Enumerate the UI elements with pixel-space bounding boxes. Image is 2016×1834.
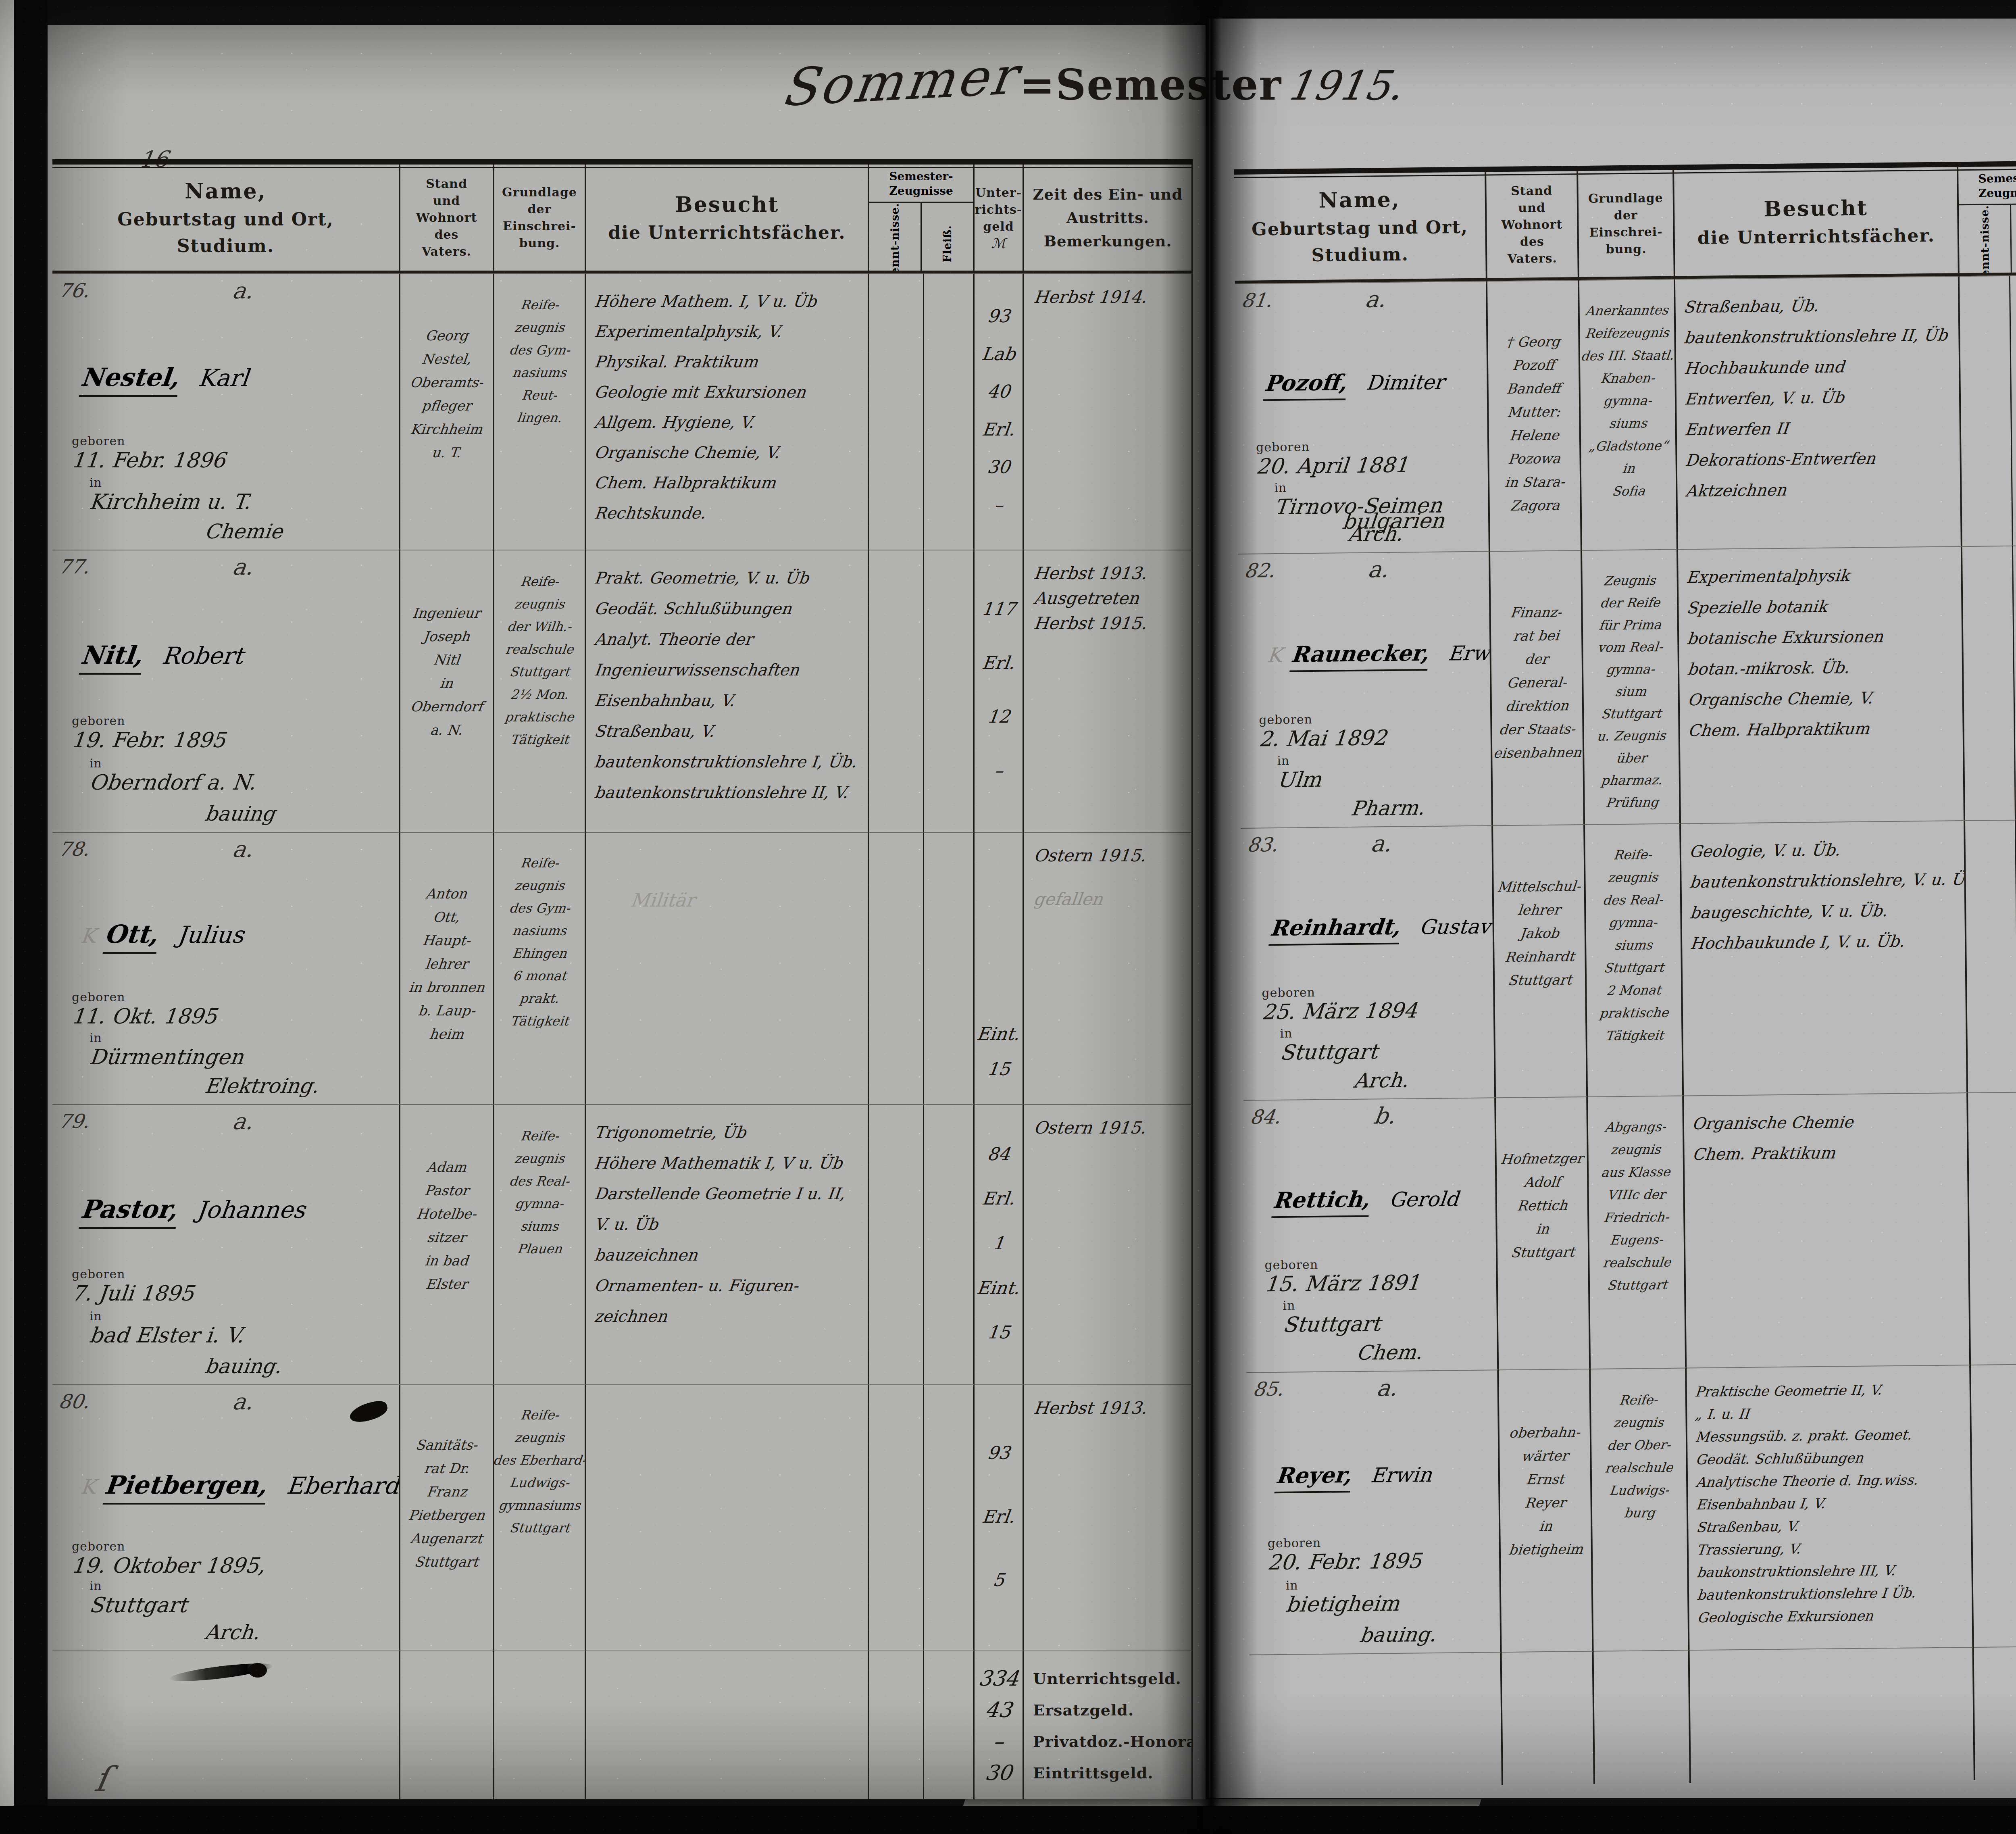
father-info-line: direktion xyxy=(1504,694,1570,718)
entry-number: 77. xyxy=(57,555,91,578)
header-line: Grundlage xyxy=(502,184,577,201)
enrollment-basis-line: zeugnis xyxy=(1610,1138,1662,1161)
birth-line: geboren15. März 1891 xyxy=(1264,1257,1420,1296)
header-zeugnisse-sub: Kennt-nisse.Fleiß. xyxy=(869,203,973,273)
father-info-line: eisenbahnen xyxy=(1492,740,1583,765)
father-info-line: bietigheim xyxy=(1508,1537,1584,1561)
enrollment-basis-line: des Gym- xyxy=(508,897,571,919)
father-info-line: Pastor xyxy=(423,1179,470,1202)
fee-value: Eint. xyxy=(976,1023,1021,1044)
birth-label: geboren xyxy=(72,714,217,728)
enrollment-basis-line: 2½ Mon. xyxy=(509,683,570,706)
father-info-line: Finanz- xyxy=(1509,600,1563,624)
student-surname: Reyer, xyxy=(1274,1462,1353,1493)
place-line: inbietigheim xyxy=(1286,1577,1400,1616)
student-name: KRaunecker,Erwin xyxy=(1267,639,1493,672)
fleiss-cell xyxy=(924,832,975,1104)
kenntnisse-cell xyxy=(869,550,924,832)
header-name-column: Name,Geburtstag und Ort,Studium. xyxy=(52,165,400,273)
student-firstname: Dimiter xyxy=(1365,370,1445,394)
enrollment-basis-line: Reife- xyxy=(1612,843,1653,866)
student-surname: Nitl, xyxy=(79,640,145,675)
subject-line: bautenkonstruktionslehre I, Üb. xyxy=(593,746,864,777)
father-info-cell: IngenieurJosephNitlinOberndorfa. N. xyxy=(400,550,494,832)
student-firstname: Eberhard xyxy=(285,1472,400,1499)
student-firstname: Erwin xyxy=(1447,641,1493,665)
subject-line: Straßenbau, V. xyxy=(593,716,864,746)
enrollment-basis-cell: Reife-zeugnisdes Eberhard-Ludwigs-gymnas… xyxy=(494,1384,586,1651)
tuition-fee-cell: 93Lab40Erl.30– xyxy=(975,273,1024,550)
place-line: inKirchheim u. T. xyxy=(90,475,251,514)
fleiss-cell xyxy=(924,273,975,550)
subject-line: Organische Chemie, V. xyxy=(593,438,864,468)
header-line: Einschrei- xyxy=(1589,223,1663,241)
enrollment-basis-line: zeugnis xyxy=(513,1147,566,1170)
birth-date: 19. Oktober 1895, xyxy=(71,1553,267,1578)
father-info-line: Bandeff xyxy=(1506,377,1562,400)
fee-value: 15 xyxy=(986,1322,1011,1342)
subject-line: Hochbaukunde I, V. u. Üb. xyxy=(1689,925,1962,959)
place-label: in xyxy=(90,1579,179,1593)
birth-line: geboren11. Okt. 1895 xyxy=(72,990,217,1028)
enrollment-basis-line: des Gym- xyxy=(508,339,571,361)
father-info-cell: AdamPastorHotelbe-sitzerin badElster xyxy=(400,1104,494,1384)
table-row-name-cell: 79.a.Pastor,Johannesgeboren7. Juli 1895i… xyxy=(52,1104,400,1384)
birth-place: Stuttgart xyxy=(1282,1312,1382,1337)
enrollment-basis-line: Reife- xyxy=(519,570,560,593)
category-letter: a. xyxy=(1364,286,1388,313)
father-info-line: oberbahn- xyxy=(1508,1420,1581,1444)
subject-line: Geologische Exkursionen xyxy=(1696,1603,1968,1629)
header-zeugnisse-title: Semester-Zeugnisse xyxy=(869,165,973,203)
header-line: der xyxy=(1614,206,1638,224)
totals-empty-cell xyxy=(494,1651,586,1800)
study-field: Elektroing. xyxy=(203,1074,320,1098)
student-firstname: Gustav xyxy=(1418,915,1491,939)
totals-empty-cell xyxy=(400,1651,494,1800)
table-row-name-cell: 76.a.Nestel,Karlgeboren11. Febr. 1896inK… xyxy=(52,273,400,550)
fleiss-cell xyxy=(924,550,975,832)
place-line: inStuttgart xyxy=(90,1579,187,1617)
study-field: bauing xyxy=(203,802,276,825)
place-line: inbad Elster i. V. xyxy=(90,1309,244,1347)
enrollment-basis-line: siums xyxy=(1614,934,1654,957)
totals-empty-cell xyxy=(1594,1650,1691,1784)
totals-empty-cell xyxy=(869,1651,924,1800)
category-letter: a. xyxy=(231,554,255,580)
student-name: Nestel,Karl xyxy=(81,363,248,397)
subject-line: Spezielle botanik xyxy=(1685,590,1958,623)
subject-line: Analytische Theorie d. Ing.wiss. xyxy=(1695,1468,1967,1493)
father-info-line: Haupt- xyxy=(421,929,472,952)
kenntnisse-cell xyxy=(869,273,924,550)
header-line: des xyxy=(435,226,459,243)
totals-empty-cell xyxy=(586,1651,869,1800)
student-surname: Rettich, xyxy=(1271,1186,1371,1218)
header-fleiss: Fleiß. xyxy=(922,203,973,273)
header-line: Unter- xyxy=(975,184,1022,201)
father-info-line: b. Laup- xyxy=(417,999,476,1022)
book-scan: Sommer =Semester 1915. 16 Name,Geburtsta… xyxy=(0,0,2016,1834)
father-info-line: der xyxy=(1524,647,1549,671)
birth-label: geboren xyxy=(1264,1257,1412,1272)
fee-value: 84 xyxy=(986,1144,1011,1164)
student-name: Rettich,Gerold xyxy=(1272,1186,1458,1218)
birth-label: geboren xyxy=(72,434,217,448)
title-handwritten-sommer: Sommer xyxy=(778,46,1021,118)
birth-place: Kirchheim u. T. xyxy=(88,490,252,514)
subjects-cell: Prakt. Geometrie, V. u. ÜbGeodät. Schluß… xyxy=(586,550,869,832)
birth-line: geboren2. Mai 1892 xyxy=(1259,711,1387,751)
enrollment-basis-line: gymna- xyxy=(1608,911,1658,934)
header-line: die Unterrichtsfächer. xyxy=(1697,222,1935,251)
header-line: Einschrei- xyxy=(503,218,576,235)
header-line: richts- xyxy=(975,201,1022,218)
enrollment-basis-line: Stuttgart xyxy=(1600,702,1662,725)
father-info-cell: Mittelschul-lehrerJakobReinhardtStuttgar… xyxy=(1493,824,1588,1097)
fee-value: 40 xyxy=(986,381,1011,402)
enrollment-basis-line: realschule xyxy=(1604,1456,1674,1480)
place-label: in xyxy=(1277,753,1313,768)
student-surname: Reinhardt, xyxy=(1268,914,1402,946)
register-table-right: Name,Geburtstag und Ort,Studium.Standund… xyxy=(1234,158,2016,1788)
subject-line: bautenkonstruktionslehre, V. u. Üb. xyxy=(1688,864,1961,897)
header-line: Besucht xyxy=(1764,193,1868,224)
enrollment-basis-cell: AnerkanntesReifezeugnisdes III. Staatl.K… xyxy=(1579,279,1678,550)
father-info-line: Rettich xyxy=(1516,1193,1568,1217)
fee-value: Erl. xyxy=(981,419,1016,440)
enrollment-basis-line: Abgangs- xyxy=(1604,1115,1667,1139)
kenntnisse-cell xyxy=(1962,546,2016,820)
header-line: Stand xyxy=(1511,182,1552,199)
father-info-line: Stuttgart xyxy=(1507,968,1573,992)
header-line: Semester- xyxy=(869,169,973,184)
birth-place: Stuttgart xyxy=(1279,1040,1379,1065)
enrollment-basis-line: in xyxy=(1621,457,1636,480)
subject-line: Höhere Mathem. I, V u. Üb xyxy=(593,286,864,317)
subject-line: botan.-mikrosk. Üb. xyxy=(1686,651,1958,684)
student-surname: Ott, xyxy=(103,919,160,954)
enrollment-basis-line: Anerkanntes xyxy=(1584,299,1669,322)
place-label: in xyxy=(90,756,248,770)
header-kenntnisse-label: Kennt-nisse. xyxy=(1978,205,1991,276)
birth-place: Ulm xyxy=(1276,767,1322,792)
enrollment-basis-line: des Real- xyxy=(508,1170,571,1192)
subject-line: Entwerfen, V. u. Üb xyxy=(1683,381,1956,414)
subject-line: Rechtskunde. xyxy=(593,498,864,528)
enrollment-basis-line: Ehingen xyxy=(511,942,568,965)
father-info-line: Ott, xyxy=(432,905,461,929)
father-info-line: Hotelbe- xyxy=(415,1202,477,1225)
enrollment-basis-line: der Ober- xyxy=(1606,1434,1671,1457)
father-info-cell: † GeorgPozoffBandeffMutter:HelenePozowai… xyxy=(1487,280,1582,551)
enrollment-basis-line: Reife- xyxy=(519,1125,560,1147)
left-page: 16 Name,Geburtstag und Ort,Studium.Stand… xyxy=(48,25,1206,1799)
header-line: Geburtstag und Ort, xyxy=(1252,213,1468,242)
birth-line: geboren19. Febr. 1895 xyxy=(72,714,225,752)
subject-line: Straßenbau, Üb. xyxy=(1682,289,1955,322)
totals-amount: 30 xyxy=(975,1761,1024,1785)
student-surname: Nestel, xyxy=(79,363,181,397)
subject-line: bautenkonstruktionslehre I Üb. xyxy=(1696,1581,1968,1606)
student-name: Pastor,Johannes xyxy=(81,1194,305,1229)
father-info-cell: GeorgNestel,Oberamts-pflegerKirchheimu. … xyxy=(400,273,494,550)
father-info-line: Reinhardt xyxy=(1504,944,1576,969)
war-mark-k: K xyxy=(1266,644,1283,667)
category-letter: a. xyxy=(1367,556,1391,583)
student-surname: Pastor, xyxy=(79,1194,179,1229)
subject-line: V. u. Üb xyxy=(593,1209,864,1240)
enrollment-basis-line: 2 Monat xyxy=(1606,979,1662,1002)
kenntnisse-cell xyxy=(869,1104,924,1384)
father-info-line: † Georg xyxy=(1505,330,1561,354)
father-info-line: Pietbergen xyxy=(407,1503,486,1527)
birth-line: geboren25. März 1894 xyxy=(1262,984,1417,1024)
enrollment-basis-cell: Abgangs-zeugnisaus KlasseVIIIc derFriedr… xyxy=(1588,1095,1687,1368)
student-firstname: Gerold xyxy=(1388,1188,1460,1212)
father-info-line: der Staats- xyxy=(1498,717,1577,741)
category-letter: a. xyxy=(1370,830,1394,857)
birth-place: bad Elster i. V. xyxy=(88,1323,245,1347)
header-kenntnisse: Kennt-nisse. xyxy=(1959,205,2012,276)
birth-date: 20. April 1881 xyxy=(1255,453,1410,479)
header-line: Vaters. xyxy=(1508,250,1557,267)
father-info-line: in xyxy=(1538,1514,1553,1538)
header-besucht-column: Besuchtdie Unterrichtsfächer. xyxy=(1674,167,1960,279)
enrollment-basis-line: des Real- xyxy=(1602,888,1664,912)
father-info-line: Hofmetzger xyxy=(1500,1146,1584,1171)
birth-date: 20. Febr. 1895 xyxy=(1266,1548,1422,1574)
father-info-line: u. T. xyxy=(431,441,462,464)
subject-line: Experimentalphysik xyxy=(1685,559,1958,592)
enrollment-basis-line: prakt. xyxy=(519,987,560,1010)
enrollment-basis-line: sium xyxy=(1614,680,1647,703)
fee-value: Erl. xyxy=(981,1506,1016,1527)
fee-value: 117 xyxy=(980,598,1016,619)
student-firstname: Johannes xyxy=(195,1196,306,1223)
place-line: inStuttgart xyxy=(1280,1025,1378,1065)
header-zeugnisse-title: Semester-Zeugnisse xyxy=(1958,166,2016,205)
totals-label: Eintrittsgeld. xyxy=(1033,1764,1154,1782)
header-line: geld xyxy=(983,218,1014,235)
header-line: und xyxy=(1518,199,1545,216)
subjects-cell: Militär xyxy=(586,832,869,1104)
category-letter: a. xyxy=(231,836,255,862)
enrollment-basis-line: praktische xyxy=(1599,1001,1670,1025)
category-letter: a. xyxy=(231,1388,255,1415)
birth-line: geboren7. Juli 1895 xyxy=(72,1267,194,1305)
tuition-fee-cell: 93Erl.5 xyxy=(975,1384,1024,1651)
subject-line: Trigonometrie, Üb xyxy=(593,1117,864,1148)
father-info-line: heim xyxy=(428,1022,465,1046)
enrollment-basis-line: zeugnis xyxy=(513,1426,566,1449)
enrollment-basis-line: siums xyxy=(1608,412,1648,435)
subject-line: Physikal. Praktikum xyxy=(593,347,864,377)
totals-empty-cell xyxy=(1690,1647,1975,1783)
student-firstname: Karl xyxy=(197,364,250,392)
enrollment-basis-cell: Zeugnisder Reifefür Primavom Real-gymna-… xyxy=(1582,549,1681,824)
subject-line: botanische Exkursionen xyxy=(1686,620,1958,654)
book-gutter-shadow xyxy=(1161,0,1258,1834)
student-name: KPietbergen,Eberhard xyxy=(81,1470,399,1505)
table-row-name-cell: 77.a.Nitl,Robertgeboren19. Febr. 1895inO… xyxy=(52,550,400,832)
father-info-line: Georg xyxy=(424,324,469,347)
totals-amounts-cell: 33443–30 xyxy=(975,1651,1024,1800)
table-row-name-cell: 85.a.Reyer,Erwingeboren20. Febr. 1895inb… xyxy=(1246,1369,1502,1655)
subject-line: Prakt. Geometrie, V. u. Üb xyxy=(593,563,864,593)
subject-line: Trassierung, V. xyxy=(1695,1536,1967,1561)
enrollment-basis-line: burg xyxy=(1623,1501,1656,1524)
birth-date: 2. Mai 1892 xyxy=(1258,725,1388,751)
enrollment-basis-line: der Reife xyxy=(1599,592,1661,615)
birth-line: geboren19. Oktober 1895, xyxy=(72,1539,265,1578)
subject-line: Allgem. Hygiene, V. xyxy=(593,407,864,438)
enrollment-basis-line: Stuttgart xyxy=(1606,1273,1668,1297)
birth-place: Dürmentingen xyxy=(88,1045,245,1069)
subjects-cell: Trigonometrie, ÜbHöhere Mathematik I, V … xyxy=(586,1104,869,1384)
kenntnisse-cell xyxy=(1960,275,2013,546)
birth-label: geboren xyxy=(1262,984,1409,1000)
enrollment-basis-line: vom Real- xyxy=(1597,636,1664,659)
subject-line: Organische Chemie xyxy=(1691,1105,1963,1139)
subject-line: Experimentalphysik, V. xyxy=(593,317,864,347)
tuition-fee-cell: Eint.15 xyxy=(975,832,1024,1104)
fee-value: Lab xyxy=(981,344,1017,364)
enrollment-basis-line: Plauen xyxy=(516,1238,563,1260)
student-name: Reinhardt,Gustav xyxy=(1270,913,1491,946)
student-firstname: Julius xyxy=(176,921,246,948)
father-info-line: Stuttgart xyxy=(1510,1240,1576,1264)
header-line: Wohnort xyxy=(416,209,477,226)
enrollment-basis-line: Reife- xyxy=(519,294,560,316)
place-label: in xyxy=(1286,1577,1391,1592)
enrollment-basis-line: Eugens- xyxy=(1609,1228,1664,1251)
enrollment-basis-line: Zeugnis xyxy=(1602,569,1657,592)
header-name-column: Name,Geburtstag und Ort,Studium. xyxy=(1234,172,1487,283)
father-info-line: in Stara- xyxy=(1504,470,1566,494)
entry-number: 80. xyxy=(57,1390,91,1413)
father-info-line: Kirchheim xyxy=(409,417,484,441)
title-year: 1915. xyxy=(1284,62,1407,109)
father-info-line: Mittelschul- xyxy=(1496,874,1582,898)
enrollment-basis-line: gymna- xyxy=(1603,389,1653,412)
father-info-line: in bad xyxy=(424,1249,469,1272)
subject-line: Organische Chemie, V. xyxy=(1686,681,1959,715)
header-stand-column: StandundWohnortdesVaters. xyxy=(1486,171,1579,281)
father-info-cell: oberbahn-wärterErnstReyerinbietigheim xyxy=(1499,1369,1593,1652)
place-line: inDürmentingen xyxy=(90,1031,244,1069)
subject-line: Ingenieurwissenschaften xyxy=(593,654,864,685)
enrollment-basis-line: Ludwigs- xyxy=(1608,1479,1670,1502)
currency-mark-icon: ℳ xyxy=(991,235,1006,251)
tuition-fee-cell: 117Erl.12– xyxy=(975,550,1024,832)
header-line: Stand xyxy=(426,175,467,192)
birth-place: Stuttgart xyxy=(88,1593,188,1617)
study-field: Chemie xyxy=(203,520,284,543)
father-info-line: Adam xyxy=(425,1155,468,1179)
enrollment-basis-line: Knaben- xyxy=(1599,367,1656,390)
category-letter: a. xyxy=(231,1108,255,1134)
student-surname: Raunecker, xyxy=(1289,640,1430,672)
header-line: Geburtstag und Ort, xyxy=(117,206,334,233)
place-line: inUlm xyxy=(1277,753,1322,792)
father-info-line: Anton xyxy=(425,882,469,905)
birth-date: 25. März 1894 xyxy=(1261,998,1418,1024)
header-fleiss: Fleiß. xyxy=(2011,204,2016,276)
header-line: Studium. xyxy=(1311,241,1409,269)
subject-line: bautenkonstruktionslehre II, Üb xyxy=(1683,319,1955,353)
fee-value: 12 xyxy=(986,706,1011,727)
father-info-line: Augenarzt xyxy=(409,1527,483,1550)
birth-date: 11. Febr. 1896 xyxy=(71,448,227,472)
enrollment-basis-line: pharmaz. xyxy=(1600,769,1663,792)
enrollment-basis-line: siums xyxy=(519,1215,560,1238)
father-info-cell: Sanitäts-rat Dr.FranzPietbergenAugenarzt… xyxy=(400,1384,494,1651)
father-info-line: Franz xyxy=(425,1480,468,1503)
subject-line: Chem. Halbpraktikum xyxy=(593,468,864,498)
totals-empty-cell xyxy=(1502,1651,1595,1785)
father-info-cell: HofmetzgerAdolfRettichinStuttgart xyxy=(1496,1096,1591,1369)
student-name: Pozoff,Dimiter xyxy=(1264,368,1444,401)
fee-value: Erl. xyxy=(981,652,1016,673)
father-info-line: Nestel, xyxy=(421,347,473,371)
place-label: in xyxy=(90,1309,236,1323)
header-line: bung. xyxy=(519,235,560,252)
birth-label: geboren xyxy=(72,1539,257,1553)
fee-value: – xyxy=(993,494,1004,515)
kenntnisse-cell xyxy=(1965,820,2016,1092)
subjects-cell: Höhere Mathem. I, V u. ÜbExperimentalphy… xyxy=(586,273,869,550)
subjects-cell: Praktische Geometrie II, V.„ I. u. IIMes… xyxy=(1687,1365,1974,1650)
place-line: inStuttgart xyxy=(1283,1298,1381,1337)
father-info-line: Elster xyxy=(425,1272,469,1296)
subject-line: Praktische Geometrie II, V. xyxy=(1694,1378,1966,1403)
header-line: Besucht xyxy=(675,190,779,219)
birth-date: 15. März 1891 xyxy=(1264,1271,1421,1296)
entry-number: 79. xyxy=(57,1110,91,1132)
enrollment-basis-line: für Prima xyxy=(1598,614,1662,637)
birth-date: 19. Febr. 1895 xyxy=(71,728,227,752)
enrollment-basis-line: lingen. xyxy=(516,406,563,429)
enrollment-basis-line: zeugnis xyxy=(1607,866,1659,889)
father-info-line: Zagora xyxy=(1509,494,1561,517)
subject-line: Eisenbahnbau I, V. xyxy=(1695,1490,1967,1516)
header-besucht-column: Besuchtdie Unterrichtsfächer. xyxy=(586,165,869,273)
enrollment-basis-line: gymnasiums xyxy=(498,1494,582,1517)
place-label: in xyxy=(1274,479,1434,494)
father-info-line: rat bei xyxy=(1512,624,1560,648)
father-info-line: Joseph xyxy=(422,625,471,648)
enrollment-basis-cell: Reife-zeugnisdes Real-gymna-siumsStuttga… xyxy=(1585,823,1684,1096)
father-info-line: Oberndorf xyxy=(409,695,484,718)
header-line: Grundlage xyxy=(1588,189,1663,207)
fee-value: 93 xyxy=(986,306,1011,326)
header-line: Vaters. xyxy=(422,243,471,260)
enrollment-basis-line: praktische xyxy=(504,706,575,728)
fleiss-cell xyxy=(924,1104,975,1384)
table-row-name-cell: 80.a.KPietbergen,Eberhardgeboren19. Okto… xyxy=(52,1384,400,1651)
place-label: in xyxy=(90,1031,235,1045)
ink-blot xyxy=(248,1663,267,1678)
subjects-cell: Organische ChemieChem. Praktikum xyxy=(1684,1092,1971,1367)
study-field: Arch. xyxy=(203,1621,261,1644)
birth-line: geboren11. Febr. 1896 xyxy=(72,434,225,472)
subjects-cell: ExperimentalphysikSpezielle botanikbotan… xyxy=(1678,546,1965,823)
category-letter: b. xyxy=(1372,1102,1397,1129)
kenntnisse-cell xyxy=(1968,1092,2016,1365)
book-cover-left xyxy=(14,0,48,1834)
birth-line: geboren20. Febr. 1895 xyxy=(1267,1534,1421,1574)
